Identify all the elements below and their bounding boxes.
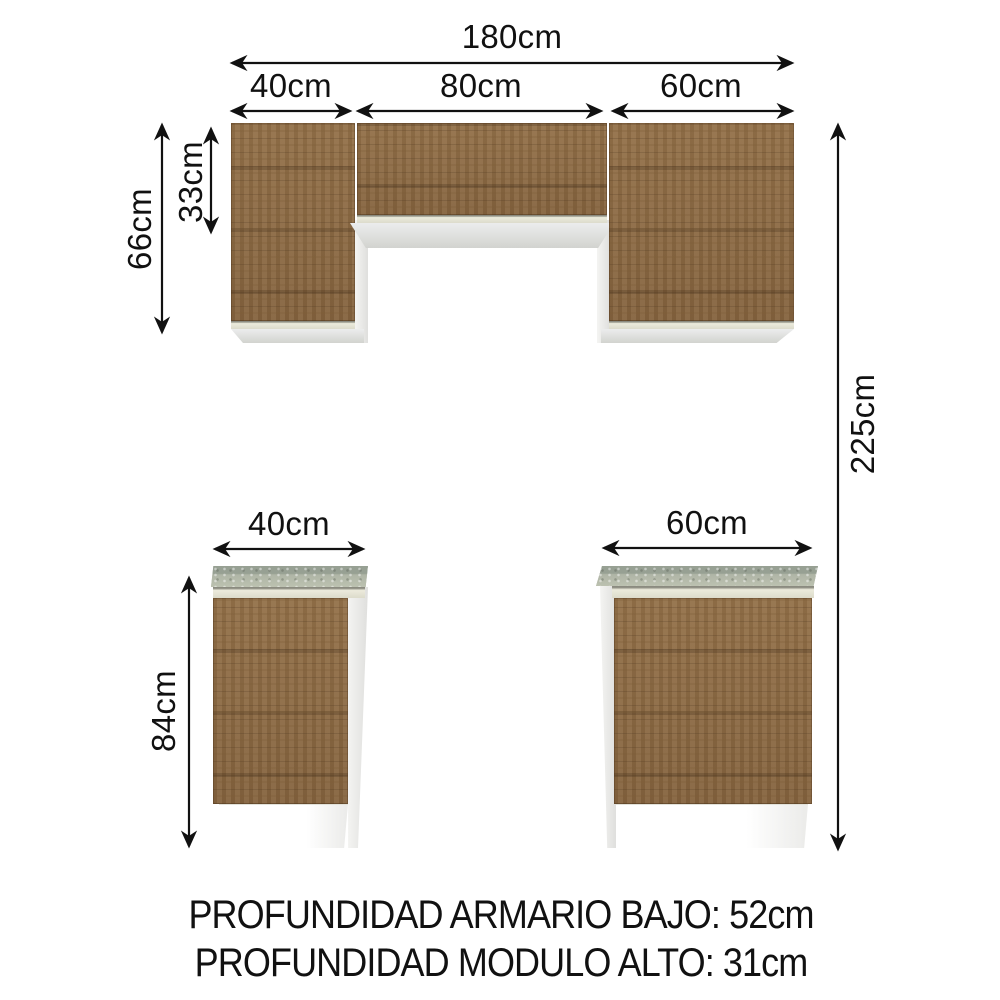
base-left-plinth [219, 804, 348, 848]
label-base-right-width: 60cm [666, 504, 748, 542]
base-right-cabinet-door [614, 598, 812, 804]
upper-right-cabinet-underside [601, 329, 794, 343]
base-left-countertop [211, 566, 368, 587]
base-right-rail [612, 586, 814, 598]
label-upper-right-width: 60cm [660, 67, 742, 105]
label-upper-side-height: 66cm [121, 188, 159, 270]
label-upper-middle-height: 33cm [172, 141, 210, 223]
base-left-side-panel [348, 587, 368, 848]
upper-middle-cabinet-door [357, 123, 607, 215]
label-upper-left-width: 40cm [250, 67, 332, 105]
base-right-countertop [596, 566, 818, 586]
base-left-rail [213, 587, 365, 598]
upper-right-cabinet-rail [609, 321, 794, 329]
depth-note-upper: PROFUNDIDAD MODULO ALTO: 31cm [51, 939, 951, 987]
label-base-left-width: 40cm [248, 505, 330, 543]
upper-left-cabinet-underside [231, 329, 364, 343]
upper-right-cabinet-door [609, 123, 794, 321]
upper-left-cabinet-door [231, 123, 355, 321]
upper-middle-cabinet-rail [357, 215, 607, 223]
label-total-height: 225cm [844, 374, 882, 475]
base-left-cabinet-door [213, 598, 348, 804]
upper-middle-cabinet-underside [350, 223, 614, 248]
base-right-plinth [616, 804, 808, 848]
label-base-height: 84cm [145, 670, 183, 752]
upper-left-cabinet-rail [231, 321, 355, 329]
depth-notes: PROFUNDIDAD ARMARIO BAJO: 52cm PROFUNDID… [51, 891, 951, 987]
product-dimension-diagram: 180cm 40cm 80cm 60cm 66cm 33cm 225cm 40c… [0, 0, 1000, 1000]
label-total-width: 180cm [462, 18, 563, 56]
depth-note-base: PROFUNDIDAD ARMARIO BAJO: 52cm [51, 891, 951, 939]
label-upper-middle-width: 80cm [440, 67, 522, 105]
